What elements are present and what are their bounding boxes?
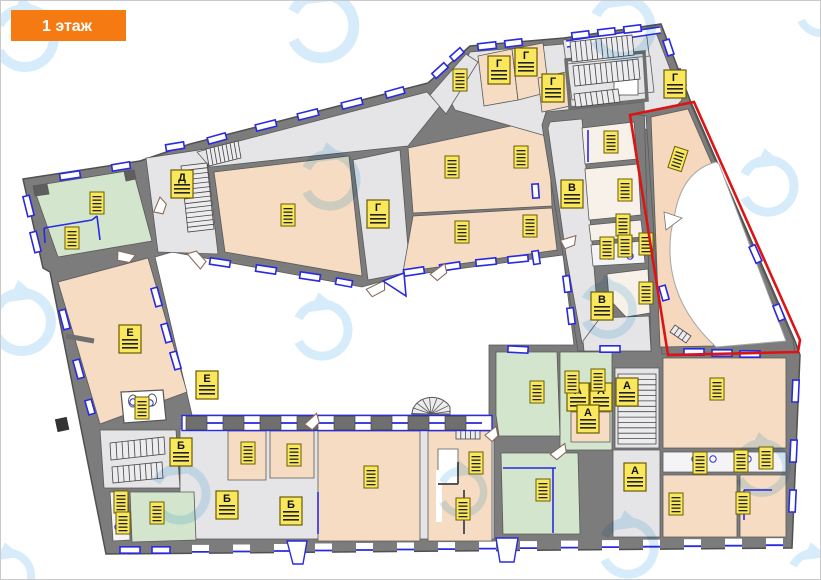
svg-text:Е: Е bbox=[126, 327, 133, 339]
svg-text:Е: Е bbox=[203, 373, 210, 385]
svg-text:В: В bbox=[598, 294, 606, 306]
svg-text:Г: Г bbox=[672, 72, 679, 84]
svg-text:Г: Г bbox=[496, 58, 503, 70]
svg-text:1 этаж: 1 этаж bbox=[42, 18, 93, 35]
svg-text:Д: Д bbox=[178, 172, 186, 184]
svg-text:Г: Г bbox=[523, 50, 530, 62]
svg-text:А: А bbox=[631, 465, 639, 477]
svg-text:А: А bbox=[623, 380, 631, 392]
svg-text:В: В bbox=[568, 182, 576, 194]
svg-text:Г: Г bbox=[375, 202, 382, 214]
svg-text:Б: Б bbox=[287, 499, 295, 511]
svg-text:А: А bbox=[584, 407, 592, 419]
svg-text:Б: Б bbox=[223, 493, 231, 505]
svg-text:Г: Г bbox=[550, 76, 557, 88]
svg-text:Б: Б bbox=[177, 440, 185, 452]
